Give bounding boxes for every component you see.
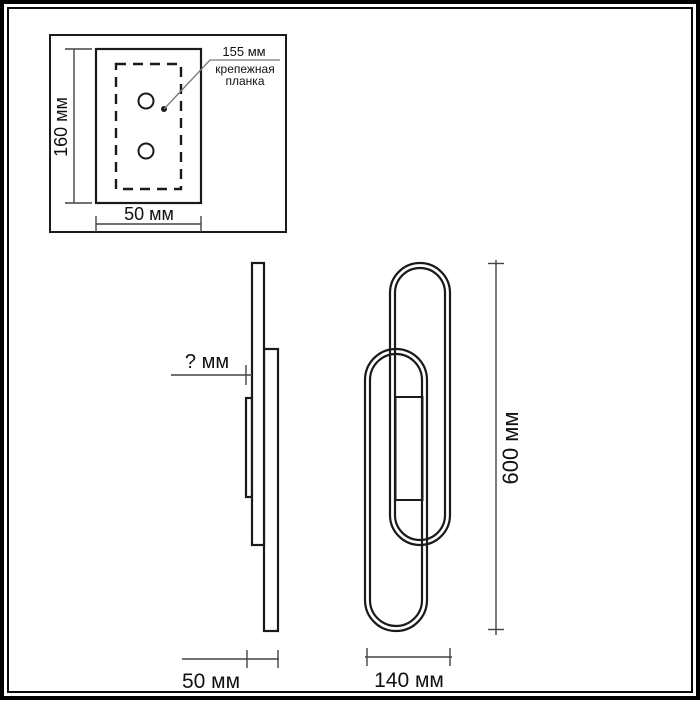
mounting-plate-inset: 155 мм крепежная планка 160 мм 50 мм (50, 35, 286, 232)
mounting-plate-outline (96, 49, 201, 203)
projection-label: ? мм (185, 351, 229, 373)
drawing-sheet: 155 мм крепежная планка 160 мм 50 мм (0, 0, 700, 700)
front-view-center-plate (396, 397, 423, 500)
mounting-hole-top (139, 94, 154, 109)
inset-height-dimension: 160 мм (51, 49, 92, 203)
inset-width-label: 50 мм (124, 204, 174, 224)
front-view-upper-loop (390, 263, 450, 545)
height-label: 600 мм (498, 411, 523, 484)
side-view: ? мм 50 мм (171, 263, 279, 693)
side-view-upper-loop-bar (252, 263, 264, 545)
depth-dimension: 50 мм (182, 650, 279, 693)
width-dimension: 140 мм (365, 648, 452, 692)
width-label: 140 мм (374, 669, 444, 692)
depth-label: 50 мм (182, 670, 240, 693)
inset-width-dimension: 50 мм (96, 204, 201, 232)
projection-dimension: ? мм (171, 351, 252, 385)
side-view-lower-loop-bar (264, 349, 278, 631)
height-dimension: 600 мм (488, 260, 523, 635)
front-view: 600 мм 140 мм (365, 260, 523, 692)
bracket-name-line2: планка (226, 74, 265, 88)
mounting-hole-bottom (139, 144, 154, 159)
technical-drawing: 155 мм крепежная планка 160 мм 50 мм (4, 4, 700, 704)
bracket-dim-label: 155 мм (222, 44, 265, 59)
inset-height-label: 160 мм (51, 97, 71, 157)
mounting-bracket-dashed-outline (116, 64, 181, 189)
